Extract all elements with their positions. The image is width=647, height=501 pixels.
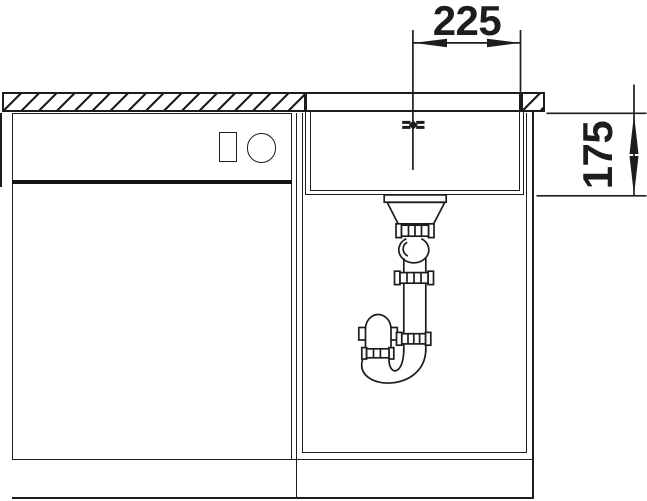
siphon-ball-joint <box>399 239 429 263</box>
siphon-outlet-bend <box>359 315 398 349</box>
slip-nut-left <box>362 348 394 359</box>
tap-hole-marker-icon <box>402 120 424 129</box>
slip-nut-upper <box>396 224 434 238</box>
installation-drawing: 225 175 <box>0 0 647 501</box>
slip-nut-mid <box>395 271 434 284</box>
dimension-depth-label: 175 <box>577 115 619 195</box>
slip-nut-right <box>397 332 431 345</box>
drain-strainer <box>384 195 446 224</box>
dimension-width-label: 225 <box>413 0 521 42</box>
drawing-overlay <box>0 0 647 501</box>
